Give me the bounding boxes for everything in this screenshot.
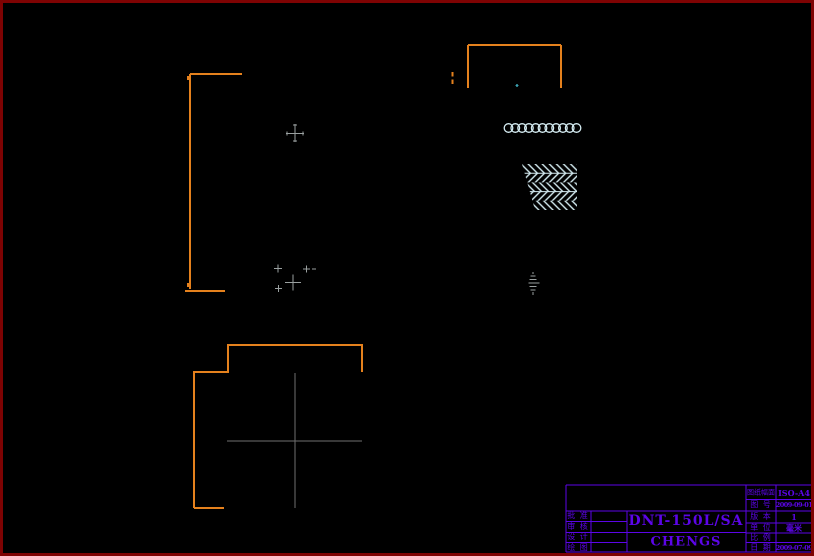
- top-left-part-outline: [185, 74, 242, 291]
- info-label-version: 版 本: [750, 513, 772, 521]
- top-right-part-outline: [453, 45, 562, 88]
- bottom-part-outline: [194, 345, 362, 508]
- part-number: DNT-150L/SA: [628, 514, 743, 528]
- info-label-drawing-no: 图 号: [750, 501, 772, 509]
- info-value-date: 2009-07-09: [776, 544, 813, 551]
- drawn-by-name: CHENGS: [651, 536, 722, 549]
- crosshair-marker: [286, 124, 304, 142]
- info-value-version: 1: [791, 513, 797, 521]
- cad-viewport[interactable]: DNT-150L/SA CHENGS 批 准 审 核 设 计 绘 图 图纸幅面 …: [0, 0, 814, 556]
- point-markers: [274, 265, 316, 293]
- info-label-sheet-size: 图纸幅面: [747, 489, 775, 496]
- sign-label-approved: 批 准: [567, 512, 589, 520]
- info-label-unit: 单 位: [750, 524, 772, 532]
- drawing-canvas[interactable]: [0, 0, 814, 556]
- bottom-center-crosshair: [227, 373, 362, 508]
- info-value-unit: 毫米: [786, 524, 802, 532]
- sign-label-checked: 审 核: [567, 523, 589, 531]
- snap-point-dot: [516, 84, 519, 87]
- sign-label-drawn: 绘 图: [567, 544, 589, 552]
- info-label-scale: 比 例: [750, 534, 772, 542]
- hatched-section-view: [510, 164, 585, 210]
- info-value-sheet-size: ISO-A4: [778, 489, 810, 497]
- sign-label-designed: 设 计: [567, 533, 589, 541]
- info-value-drawing-no: 2009-09-01: [776, 502, 813, 509]
- section-center-mark: [529, 272, 540, 295]
- bolt-holes-row: [504, 124, 581, 133]
- info-label-date: 日 期: [750, 544, 772, 552]
